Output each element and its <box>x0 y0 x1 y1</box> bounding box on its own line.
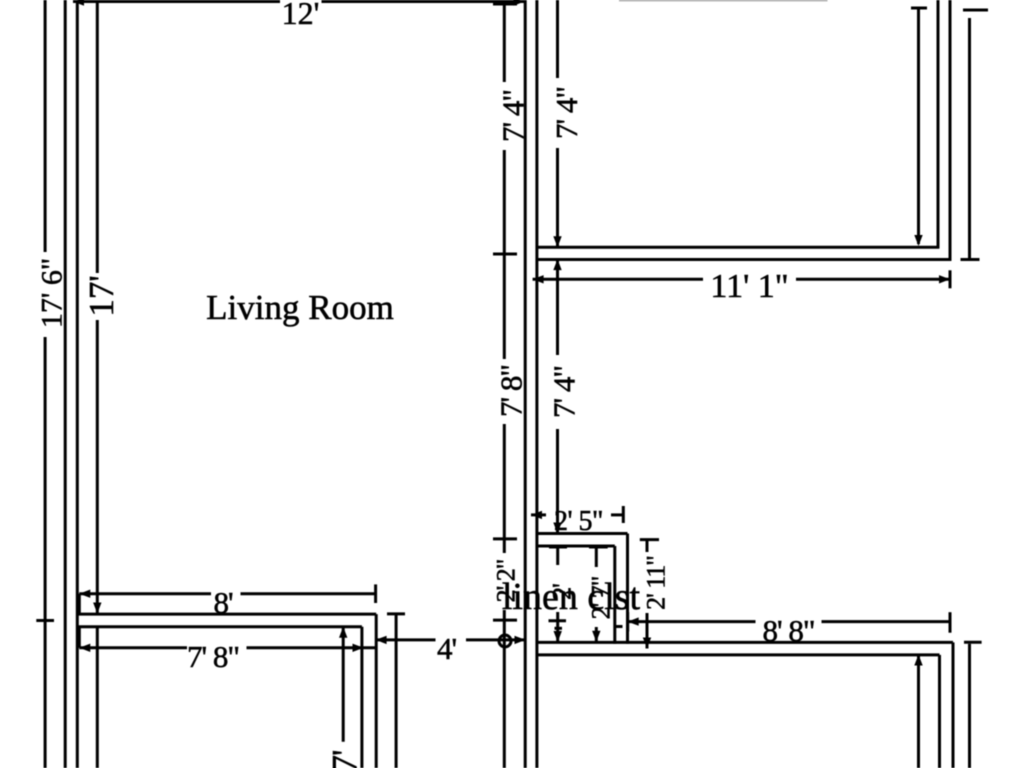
svg-text:7' 4": 7' 4" <box>549 87 584 139</box>
svg-text:2' 5": 2' 5" <box>554 506 603 537</box>
svg-text:12': 12' <box>282 0 320 31</box>
svg-text:2' 11": 2' 11" <box>642 556 671 610</box>
svg-text:7' 8": 7' 8" <box>494 365 529 417</box>
svg-text:17' 6": 17' 6" <box>36 258 69 328</box>
svg-text:8' 8": 8' 8" <box>763 613 815 648</box>
svg-text:11' 1": 11' 1" <box>710 268 788 305</box>
svg-text:7' 4": 7' 4" <box>496 90 531 142</box>
svg-text:7' 8": 7' 8" <box>187 639 239 674</box>
svg-text:17': 17' <box>82 275 121 316</box>
svg-text:linen clst: linen clst <box>502 576 641 618</box>
svg-text:7' 4": 7' 4" <box>547 366 582 418</box>
svg-text:7': 7' <box>325 751 365 768</box>
svg-text:Living Room: Living Room <box>206 288 394 327</box>
svg-text:4': 4' <box>437 631 457 666</box>
svg-text:8': 8' <box>213 585 233 620</box>
